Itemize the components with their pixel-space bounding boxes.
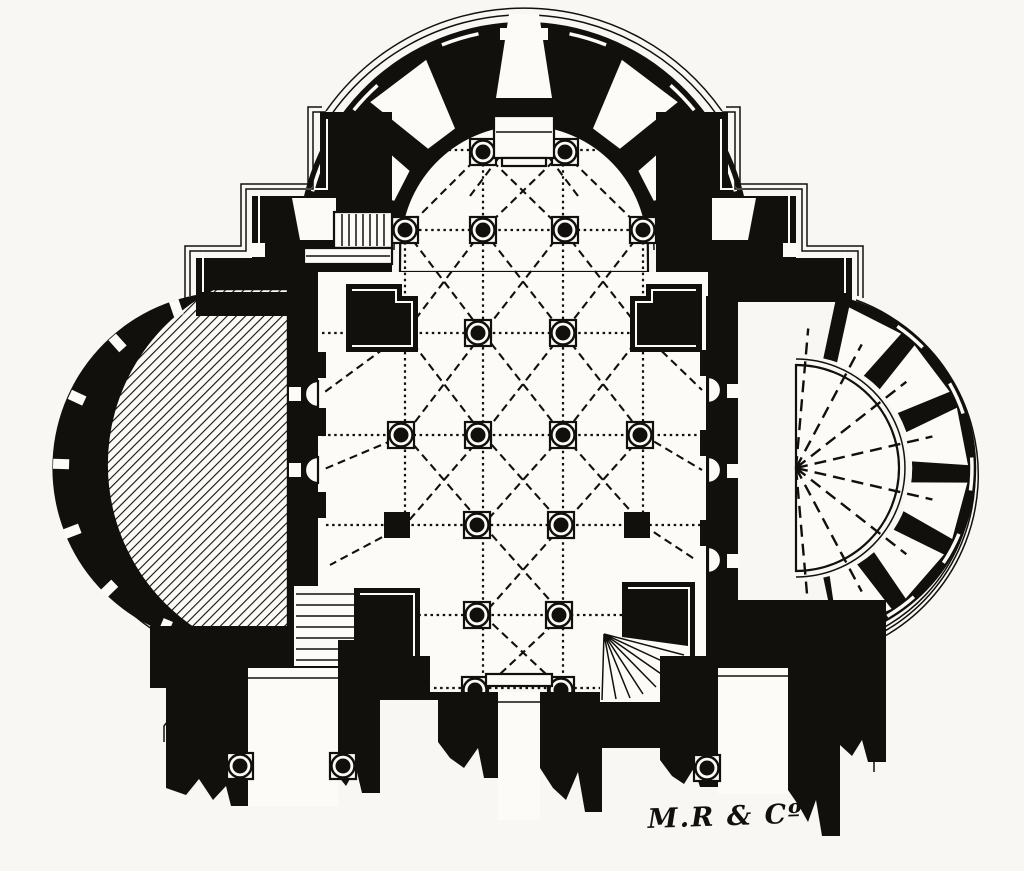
central-door-opening [498, 692, 540, 820]
square-pier [624, 512, 650, 538]
column [465, 320, 491, 346]
column [465, 422, 491, 448]
door-lintel [486, 674, 552, 686]
column [464, 602, 490, 628]
column [392, 217, 418, 243]
left-door-opening [248, 668, 338, 806]
door-column [227, 753, 253, 779]
column [470, 139, 496, 165]
right-door-opening [718, 668, 788, 794]
column [550, 320, 576, 346]
door-column [330, 753, 356, 779]
buttress [840, 628, 886, 762]
column [546, 602, 572, 628]
square-pier [384, 512, 410, 538]
church-floor-plan-figure: M.R & Cº [0, 0, 1024, 871]
scanned-plate: M.R & Cº [0, 0, 1024, 871]
door-column [694, 755, 720, 781]
column [470, 217, 496, 243]
column [548, 512, 574, 538]
plan-canvas: M.R & Cº [0, 0, 1024, 871]
column [552, 139, 578, 165]
engraver-signature: M.R & Cº [646, 799, 804, 835]
column [550, 422, 576, 448]
column [627, 422, 653, 448]
altar [494, 116, 554, 166]
column [630, 217, 656, 243]
column [464, 512, 490, 538]
buttress [166, 646, 248, 806]
column [388, 422, 414, 448]
column [552, 217, 578, 243]
